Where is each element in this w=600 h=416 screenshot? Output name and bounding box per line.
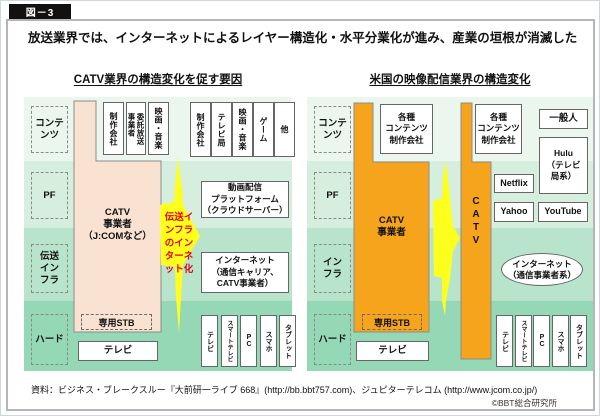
device-box-tablet: タブレット <box>279 315 296 367</box>
catv-bar-label: CATV <box>461 192 491 252</box>
layer-label-infra: イン フラ <box>314 244 351 293</box>
youtube-box: YouTube <box>538 202 588 222</box>
content-maker-box-2: 各種 コンテンツ 制作会社 <box>475 104 522 154</box>
netflix-box: Netflix <box>494 174 534 193</box>
content-box-movie-music: 映画・音楽 <box>148 102 169 155</box>
content-box-commissioned-broadcaster: 委託放送 事業者 <box>126 102 146 155</box>
content-box-production-company: 制作会社 <box>190 102 211 157</box>
source-note: 資料：ビジネス・ブレークスルー『大前研一ライブ 668』(http://bb.b… <box>31 383 537 396</box>
device-box-smartphone: スマホ <box>260 315 277 367</box>
device-box-tv: テレビ <box>201 315 218 367</box>
layer-label-content: コンテ ンツ <box>314 106 351 153</box>
figure-badge: 図－3 <box>9 4 71 19</box>
layer-label-content: コンテ ンツ <box>31 106 68 153</box>
left-panel-heading: CATV業界の構造変化を促す要因 <box>24 71 292 87</box>
video-platform-box: 動画配信 プラットフォーム （クラウドサーバー） <box>201 181 289 218</box>
content-box-group: 制作会社 テレビ局 映画・音楽 ゲーム 他 <box>190 102 293 155</box>
internetization-arrow <box>433 161 460 316</box>
layer-label-infra: 伝送 イン フラ <box>31 244 68 293</box>
left-panel: コンテ ンツ PF 伝送 イン フラ ハード 制作会社 委託放送 事業者 映画・… <box>24 97 292 371</box>
device-box-group: テレビ スマートテレビ PC スマホ タブレット <box>201 315 296 365</box>
right-panel-heading: 米国の映像配信業界の構造変化 <box>307 71 593 87</box>
dedicated-stb-box: 専用STB <box>81 314 152 330</box>
content-box-movie-music: 映画・音楽 <box>232 102 253 157</box>
device-box-smartphone: スマホ <box>552 315 569 367</box>
slide-title: 放送業界では、インターネットによるレイヤー構造化・水平分業化が進み、産業の垣根が… <box>28 27 577 46</box>
catv-operator-label: CATV 事業者 <box>354 215 429 239</box>
layer-label-pf: PF <box>31 172 68 219</box>
yahoo-box: Yahoo <box>494 202 534 222</box>
slide: 図－3 放送業界では、インターネットによるレイヤー構造化・水平分業化が進み、産業… <box>0 0 600 416</box>
right-panel: コンテ ンツ PF イン フラ ハード 各種 コンテンツ 制作会社 各種 コンテ… <box>307 97 593 371</box>
copyright-note: ©BBT総合研究所 <box>492 397 557 409</box>
dedicated-stb-box: 専用STB <box>362 314 422 330</box>
content-box-tv-station: テレビ局 <box>211 102 232 157</box>
device-box-pc: PC <box>240 315 257 367</box>
content-box-other: 他 <box>274 102 295 157</box>
layer-label-hard: ハード <box>314 314 351 365</box>
content-maker-box-1: 各種 コンテンツ 制作会社 <box>380 104 433 154</box>
hulu-box: Hulu （テレビ 局系） <box>539 137 588 194</box>
tv-box: テレビ <box>78 341 158 361</box>
device-box-tablet: タブレット <box>570 315 587 367</box>
layer-label-pf: PF <box>314 172 351 219</box>
internet-telecom-ellipse: インターネット （通信事業者系） <box>501 253 583 286</box>
device-box-pc: PC <box>533 315 550 367</box>
internetization-arrow-label: 伝送イ ンフラ のイン ターネ ット化 <box>161 211 197 276</box>
device-box-tv: テレビ <box>496 315 513 367</box>
catv-operator-label: CATV 事業者 （J:COMなど） <box>74 207 161 243</box>
content-box-game: ゲーム <box>253 102 274 157</box>
general-public-box: 一般人 <box>539 109 588 129</box>
device-box-smart-tv: スマートテレビ <box>515 315 532 367</box>
content-box-production-company: 制作会社 <box>103 102 124 155</box>
device-box-smart-tv: スマートテレビ <box>221 315 238 367</box>
internet-carrier-box: インターネット （通信キャリア、 CATV事業者） <box>201 252 289 293</box>
tv-box: テレビ <box>356 341 429 361</box>
layer-label-hard: ハード <box>31 314 68 365</box>
device-box-group: テレビ スマートテレビ PC スマホ タブレット <box>496 315 587 365</box>
